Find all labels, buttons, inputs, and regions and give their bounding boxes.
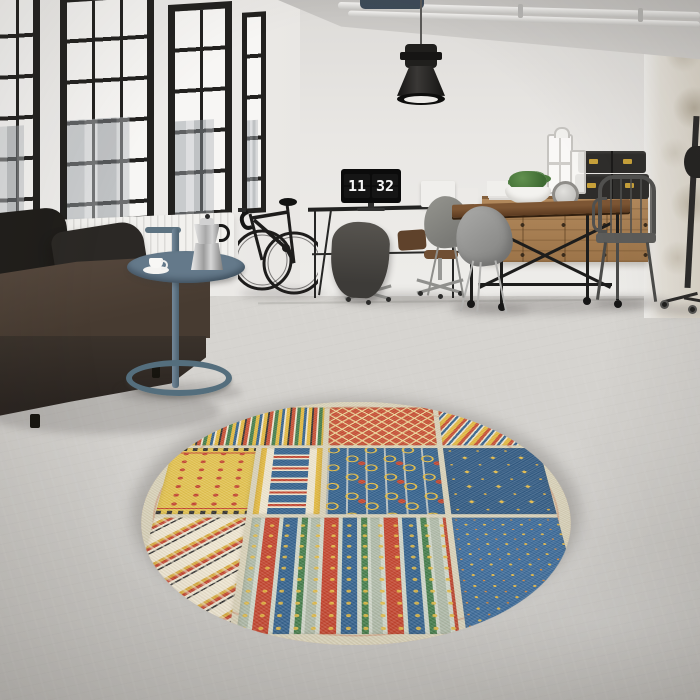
stand-shadow (655, 305, 700, 315)
rug-panel-red-lattice (328, 408, 437, 446)
table-caster (614, 300, 622, 308)
caster-wheel (346, 297, 351, 302)
city-view (175, 119, 225, 216)
sofa-leg (30, 414, 40, 428)
rug-panel-swirls (326, 448, 446, 514)
brass-latch (623, 159, 632, 164)
metal-armchair (598, 175, 656, 237)
table-caster (467, 300, 475, 308)
rug-panel-yellow-dots (155, 448, 256, 514)
round-patchwork-rug (144, 384, 568, 624)
caster-wheel (438, 294, 443, 299)
box-divider (611, 151, 613, 173)
storage-box (578, 151, 646, 173)
table-stretcher (478, 283, 612, 286)
rug-panel-ornament (253, 448, 323, 514)
stand-disc (684, 146, 700, 178)
bicycle (238, 168, 318, 298)
rug-surface (104, 402, 609, 645)
rug-panel-large-stars (443, 448, 557, 514)
office-chair-post (438, 258, 442, 280)
moka-pot-lid (200, 218, 214, 225)
espresso-cup (149, 258, 163, 268)
lamp-fixture (405, 44, 437, 68)
caster-wheel (418, 291, 423, 296)
pipe-joint (638, 8, 643, 22)
brass-latch (587, 183, 596, 188)
bike-shadow (240, 288, 326, 299)
brass-latch (589, 159, 598, 164)
loft-room-photo: 11 32 (0, 0, 700, 700)
moka-pot (191, 243, 223, 270)
rug-panel-stripes (174, 408, 325, 446)
clock-hours: 11 (344, 174, 370, 198)
rug-panel-small-stars (452, 518, 589, 634)
industrial-window (0, 0, 40, 244)
caster-wheel (366, 300, 371, 305)
monitor-flip-clock: 11 32 (341, 169, 401, 203)
caster-wheel (386, 297, 391, 302)
monitor-base (357, 208, 385, 211)
rug-panel-waves (438, 408, 539, 446)
city-view (67, 115, 147, 220)
rug-panel-scroll-stripes (236, 518, 459, 634)
table-caster (583, 297, 591, 305)
paper-stack (458, 188, 478, 204)
clock-minutes: 32 (372, 174, 398, 198)
pipe-joint (518, 4, 523, 18)
lamp-cord (420, 0, 422, 50)
industrial-window (168, 1, 232, 223)
office-chair-base (416, 278, 464, 294)
industrial-window (60, 0, 154, 228)
metal-chair-leg (616, 243, 619, 299)
moka-pot-knob (205, 214, 210, 219)
rug-panel-zigzag (123, 518, 246, 634)
lamp-diffuser (404, 96, 438, 103)
office-chair-back (397, 229, 426, 251)
ceiling-duct (360, 0, 424, 9)
